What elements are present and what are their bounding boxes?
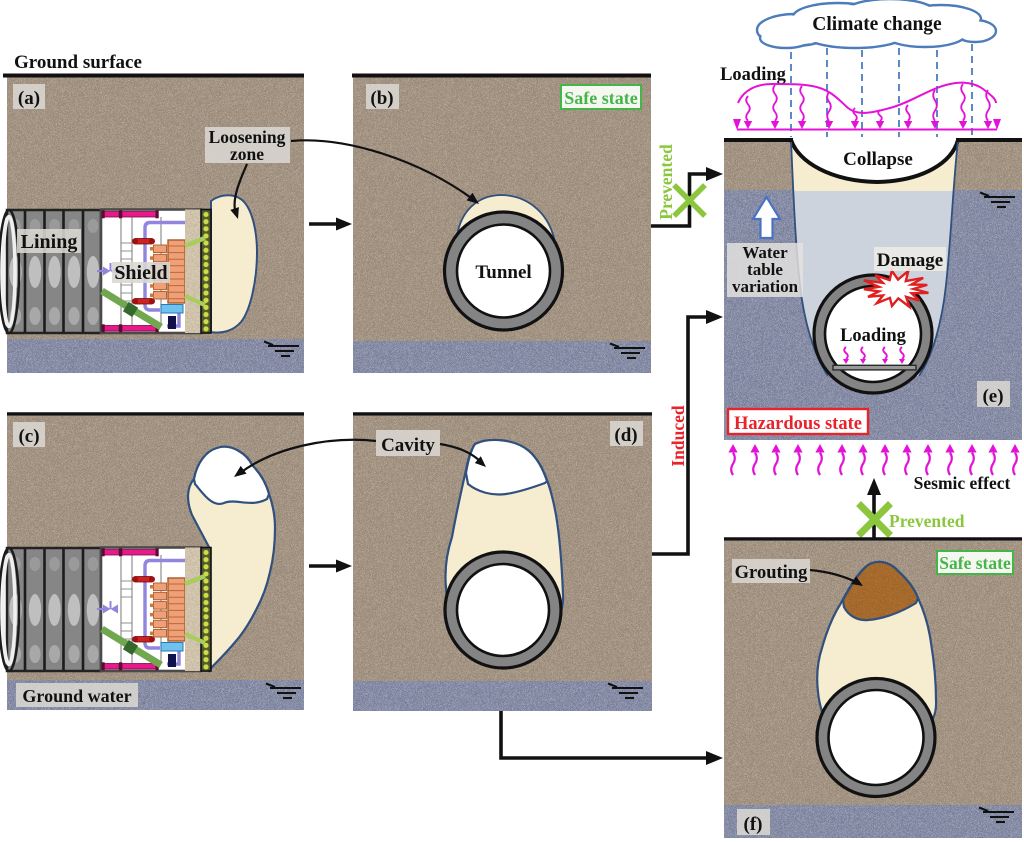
svg-text:Climate change: Climate change	[812, 14, 942, 35]
svg-text:Prevented: Prevented	[889, 511, 965, 531]
svg-text:variation: variation	[732, 277, 799, 296]
svg-text:(a): (a)	[18, 88, 40, 109]
svg-text:Prevented: Prevented	[656, 144, 676, 220]
svg-text:Grouting: Grouting	[735, 563, 808, 583]
svg-text:(c): (c)	[18, 426, 39, 447]
svg-text:zone: zone	[230, 144, 264, 164]
svg-text:Safe state: Safe state	[564, 88, 637, 108]
svg-text:Ground water: Ground water	[22, 686, 131, 706]
svg-text:(b): (b)	[370, 88, 393, 109]
svg-text:Induced: Induced	[668, 405, 688, 467]
svg-text:Loading: Loading	[720, 65, 787, 85]
svg-text:Cavity: Cavity	[381, 435, 435, 456]
svg-text:Sesmic effect: Sesmic effect	[914, 473, 1011, 493]
svg-text:Hazardous state: Hazardous state	[734, 414, 862, 434]
svg-text:Shield: Shield	[114, 262, 167, 284]
svg-text:Tunnel: Tunnel	[475, 262, 531, 283]
svg-text:Ground surface: Ground surface	[14, 52, 142, 73]
svg-text:(d): (d)	[614, 425, 637, 446]
svg-text:Collapse: Collapse	[843, 149, 913, 170]
svg-text:Loading: Loading	[840, 326, 907, 346]
svg-text:(e): (e)	[982, 386, 1003, 407]
svg-text:(f): (f)	[744, 814, 763, 835]
svg-text:Lining: Lining	[21, 231, 78, 253]
svg-text:Damage: Damage	[877, 250, 943, 271]
svg-text:Safe state: Safe state	[939, 553, 1011, 573]
